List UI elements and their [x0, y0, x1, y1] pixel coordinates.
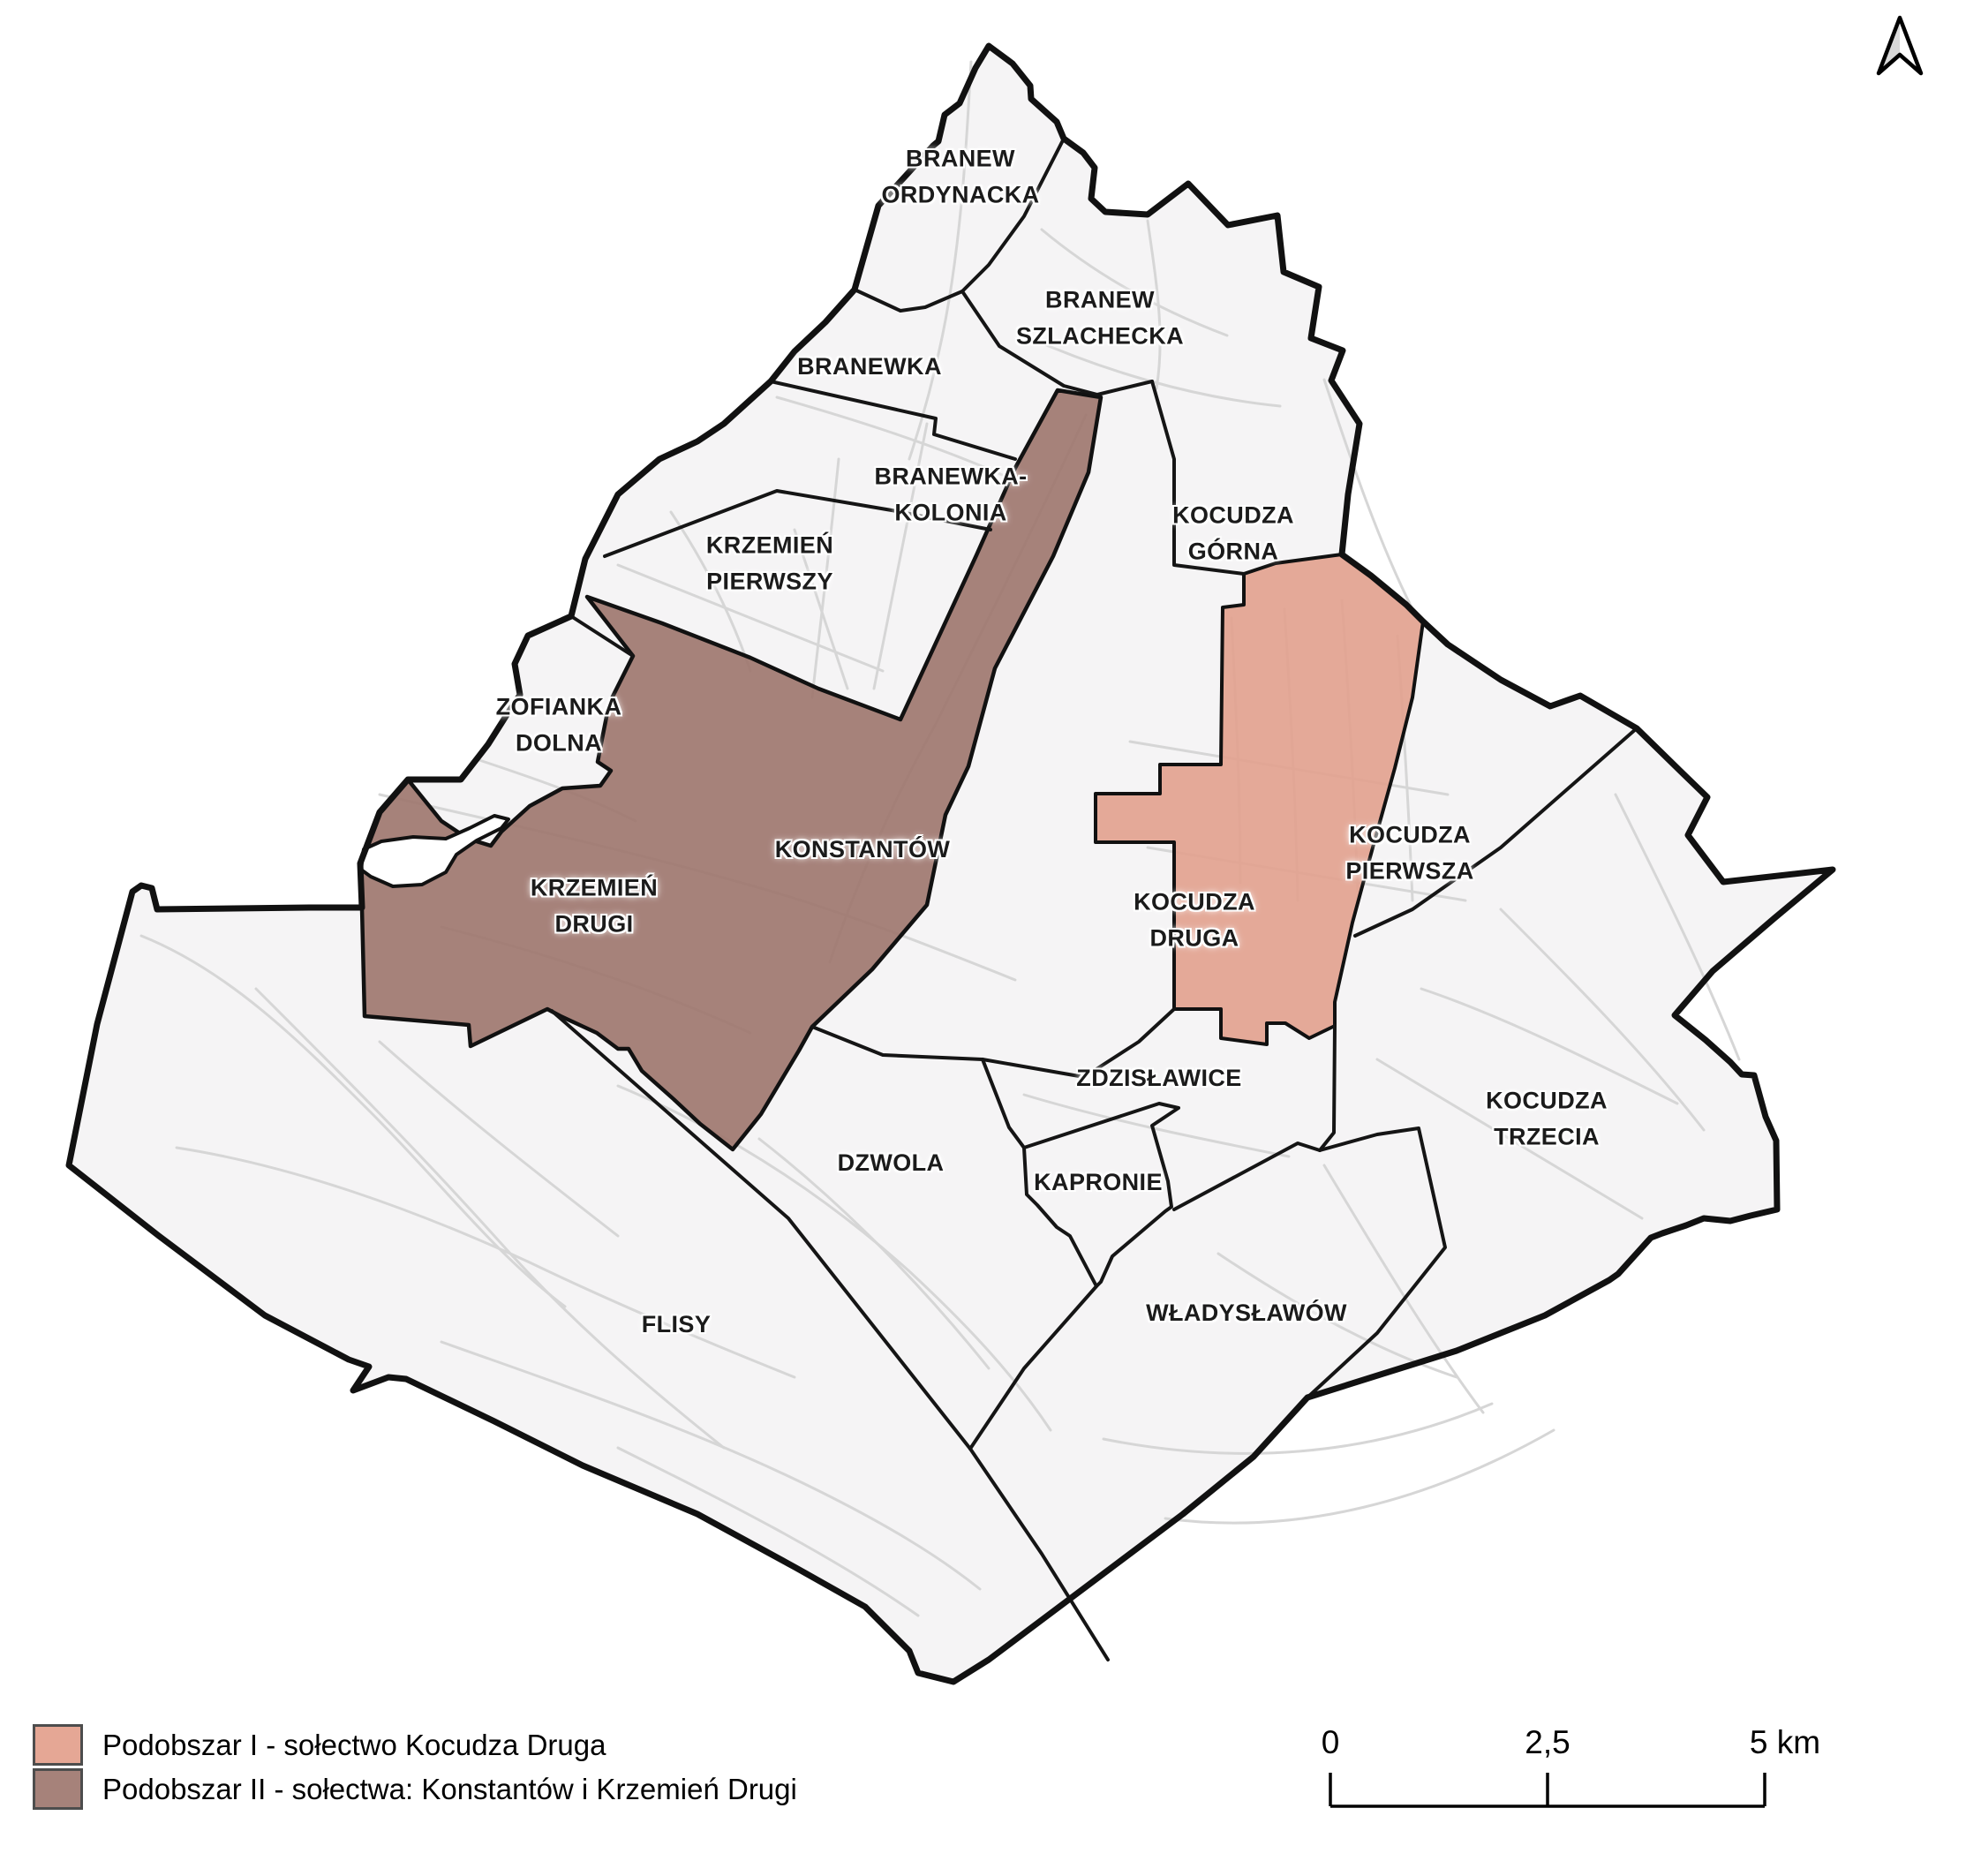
- scale-label-0: 0: [1322, 1724, 1340, 1760]
- legend-item-subarea-1: Podobszar I - sołectwo Kocudza Druga: [33, 1724, 797, 1766]
- map-canvas: 0 2,5 5 km BRANEWORDYNACKABRANEWSZLACHEC…: [0, 0, 1981, 1876]
- legend-label-subarea-1: Podobszar I - sołectwo Kocudza Druga: [102, 1728, 606, 1763]
- municipality-map-svg: 0 2,5 5 km: [0, 0, 1981, 1876]
- map-page: { "map": { "title": "Gmina sołectwa map …: [0, 0, 1981, 1876]
- legend-label-subarea-2: Podobszar II - sołectwa: Konstantów i Kr…: [102, 1772, 797, 1807]
- legend: Podobszar I - sołectwo Kocudza Druga Pod…: [33, 1724, 797, 1812]
- legend-swatch-subarea-2: [33, 1768, 83, 1810]
- scale-bar-labels: 0 2,5 5 km: [1322, 1724, 1820, 1760]
- scale-label-max: 5 km: [1750, 1724, 1820, 1760]
- north-arrow-icon: [1879, 18, 1921, 73]
- legend-item-subarea-2: Podobszar II - sołectwa: Konstantów i Kr…: [33, 1768, 797, 1810]
- legend-swatch-subarea-1: [33, 1724, 83, 1766]
- scale-label-mid: 2,5: [1525, 1724, 1570, 1760]
- scale-bar: [1330, 1773, 1765, 1806]
